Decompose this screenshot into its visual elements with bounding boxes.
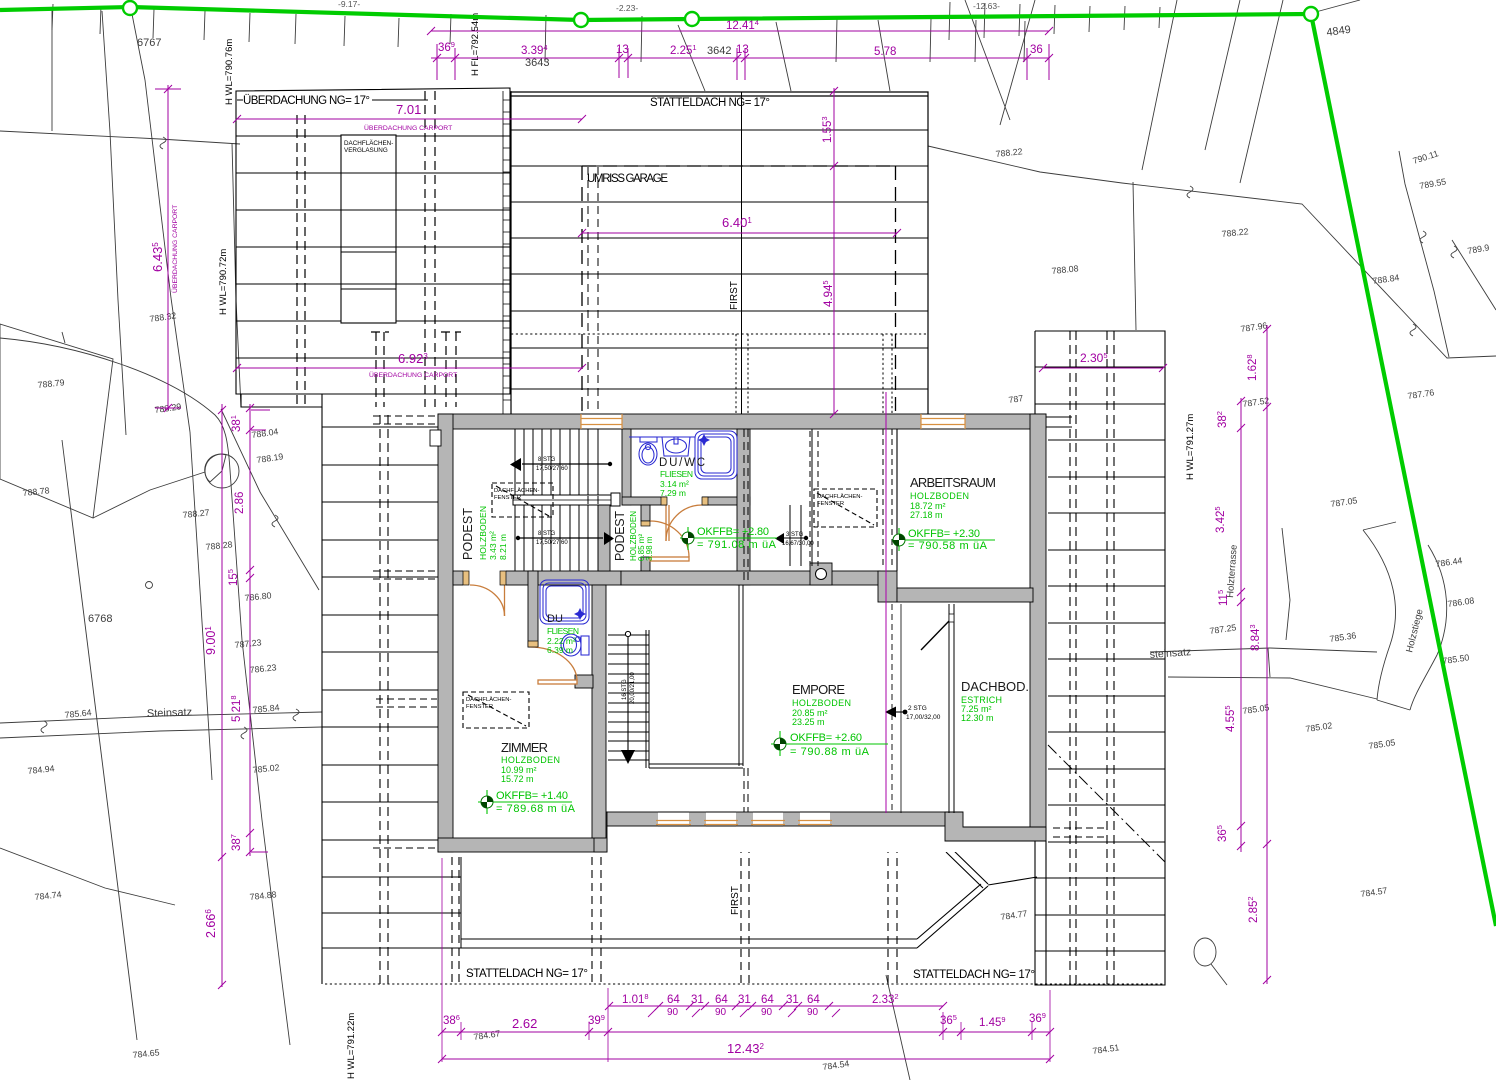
svg-text:7.29 m: 7.29 m <box>660 488 686 498</box>
svg-text:16 STG: 16 STG <box>622 679 628 700</box>
svg-text:16,67/30,00: 16,67/30,00 <box>782 541 814 547</box>
svg-text:= 791.08 m üA: = 791.08 m üA <box>697 539 777 551</box>
svg-text:-9.17-: -9.17- <box>338 0 360 9</box>
svg-text:31: 31 <box>691 994 704 1006</box>
svg-text:H FL=792.54m: H FL=792.54m <box>470 13 481 76</box>
svg-text:2 STG: 2 STG <box>908 705 927 712</box>
svg-text:12.30 m: 12.30 m <box>961 713 994 723</box>
svg-text:31: 31 <box>786 994 799 1006</box>
svg-text:OKFFB= +2.80: OKFFB= +2.80 <box>697 526 769 538</box>
svg-text:VERGLASUNG: VERGLASUNG <box>344 147 388 154</box>
svg-text:787: 787 <box>1008 393 1024 405</box>
svg-text:20,00/21,00: 20,00/21,00 <box>630 672 636 704</box>
svg-text:FIRST: FIRST <box>729 281 740 310</box>
svg-text:OKFFB= +2.60: OKFFB= +2.60 <box>790 732 862 744</box>
svg-text:2.86: 2.86 <box>234 492 246 514</box>
svg-text:HOLZBODEN: HOLZBODEN <box>478 506 488 560</box>
svg-text:ZIMMER: ZIMMER <box>501 740 548 755</box>
svg-text:ÜBERDACHUNG NG= 17°: ÜBERDACHUNG NG= 17° <box>243 95 370 107</box>
svg-text:36: 36 <box>1030 44 1043 56</box>
svg-text:ARBEITSRAUM: ARBEITSRAUM <box>910 475 996 490</box>
svg-text:FIRST: FIRST <box>730 886 741 915</box>
svg-text:-12.63-: -12.63- <box>973 1 1000 11</box>
svg-text:FENSTER: FENSTER <box>494 495 521 501</box>
svg-text:90: 90 <box>761 1007 773 1018</box>
svg-text:90: 90 <box>667 1007 679 1018</box>
svg-text:UMRISS GARAGE: UMRISS GARAGE <box>587 173 668 185</box>
svg-text:Steinsatz: Steinsatz <box>147 706 193 720</box>
svg-text:3642: 3642 <box>707 45 731 57</box>
svg-text:ÜBERDACHUNG CARPORT: ÜBERDACHUNG CARPORT <box>369 371 457 379</box>
svg-text:64: 64 <box>807 994 820 1006</box>
svg-text:DU/WC: DU/WC <box>659 457 705 469</box>
svg-text:5.78: 5.78 <box>874 46 896 58</box>
svg-text:90: 90 <box>715 1007 727 1018</box>
svg-text:H WL=790.76m: H WL=790.76m <box>224 39 235 105</box>
svg-text:13: 13 <box>616 44 629 56</box>
svg-text:FLIESEN: FLIESEN <box>547 626 579 636</box>
svg-text:DACHFLÄCHEN-: DACHFLÄCHEN- <box>466 696 511 703</box>
svg-text:23.25 m: 23.25 m <box>792 717 825 727</box>
svg-text:HOLZBODEN: HOLZBODEN <box>501 755 560 765</box>
svg-text:17,00/32,00: 17,00/32,00 <box>906 714 941 721</box>
svg-text:6.39 m: 6.39 m <box>547 645 573 655</box>
svg-text:OKFFB= +1.40: OKFFB= +1.40 <box>496 790 568 802</box>
svg-text:H WL=791.27m: H WL=791.27m <box>1185 414 1196 480</box>
svg-text:3.43 m²: 3.43 m² <box>488 531 498 560</box>
svg-text:8 STG: 8 STG <box>538 457 556 463</box>
svg-text:7.01: 7.01 <box>396 102 421 117</box>
svg-text:H WL=790.72m: H WL=790.72m <box>218 249 229 315</box>
svg-text:H WL=791.22m: H WL=791.22m <box>346 1013 357 1079</box>
svg-text:= 790.88 m üA: = 790.88 m üA <box>790 746 870 758</box>
svg-text:STATTELDACH NG= 17°: STATTELDACH NG= 17° <box>650 97 770 109</box>
svg-text:DACHFLÄCHEN-: DACHFLÄCHEN- <box>344 139 393 147</box>
svg-text:31: 31 <box>738 994 751 1006</box>
svg-text:ÜBERDACHUNG CARPORT: ÜBERDACHUNG CARPORT <box>364 124 452 132</box>
svg-text:17,50/27,60: 17,50/27,60 <box>536 466 568 472</box>
svg-text:FENSTER: FENSTER <box>817 501 844 507</box>
svg-text:STATTELDACH NG= 17°: STATTELDACH NG= 17° <box>913 969 1035 981</box>
svg-text:STATTELDACH NG= 17°: STATTELDACH NG= 17° <box>466 968 588 980</box>
svg-text:3.98 m: 3.98 m <box>645 536 654 561</box>
svg-text:27.18 m: 27.18 m <box>910 510 943 520</box>
svg-text:OKFFB= +2.30: OKFFB= +2.30 <box>908 528 980 540</box>
svg-text:FLIESEN: FLIESEN <box>660 469 693 479</box>
svg-text:DACHFLÄCHEN-: DACHFLÄCHEN- <box>494 487 539 494</box>
svg-text:2.62: 2.62 <box>512 1016 537 1031</box>
svg-text:PODEST: PODEST <box>613 511 627 561</box>
svg-text:6768: 6768 <box>88 613 112 625</box>
svg-text:DU: DU <box>547 613 563 625</box>
svg-text:15.72 m: 15.72 m <box>501 774 534 784</box>
svg-text:EMPORE: EMPORE <box>792 682 845 697</box>
svg-text:ÜBERDACHUNG CARPORT: ÜBERDACHUNG CARPORT <box>171 205 179 293</box>
svg-text:64: 64 <box>761 994 774 1006</box>
svg-text:12.432: 12.432 <box>727 1041 765 1056</box>
svg-text:17,50/27,60: 17,50/27,60 <box>536 540 568 546</box>
svg-text:64: 64 <box>715 994 728 1006</box>
svg-text:90: 90 <box>807 1007 819 1018</box>
svg-text:3643: 3643 <box>525 57 549 69</box>
svg-text:= 790.58 m üA: = 790.58 m üA <box>908 540 988 552</box>
svg-text:64: 64 <box>667 994 680 1006</box>
svg-text:3 STG: 3 STG <box>786 532 804 538</box>
svg-text:HOLZBODEN: HOLZBODEN <box>792 698 851 708</box>
svg-text:13: 13 <box>736 44 749 56</box>
svg-text:8.21 m: 8.21 m <box>498 534 508 560</box>
svg-text:PODEST: PODEST <box>461 508 475 560</box>
svg-text:8 STG: 8 STG <box>538 531 556 537</box>
svg-text:DACHFLÄCHEN-: DACHFLÄCHEN- <box>817 493 862 500</box>
svg-text:DACHBOD.: DACHBOD. <box>961 679 1029 694</box>
svg-text:-2.23-: -2.23- <box>616 3 638 13</box>
svg-text:6767: 6767 <box>137 37 161 49</box>
svg-text:FENSTER: FENSTER <box>466 704 493 710</box>
svg-text:HOLZBODEN: HOLZBODEN <box>910 491 969 501</box>
svg-text:= 789.68 m üA: = 789.68 m üA <box>496 803 576 815</box>
